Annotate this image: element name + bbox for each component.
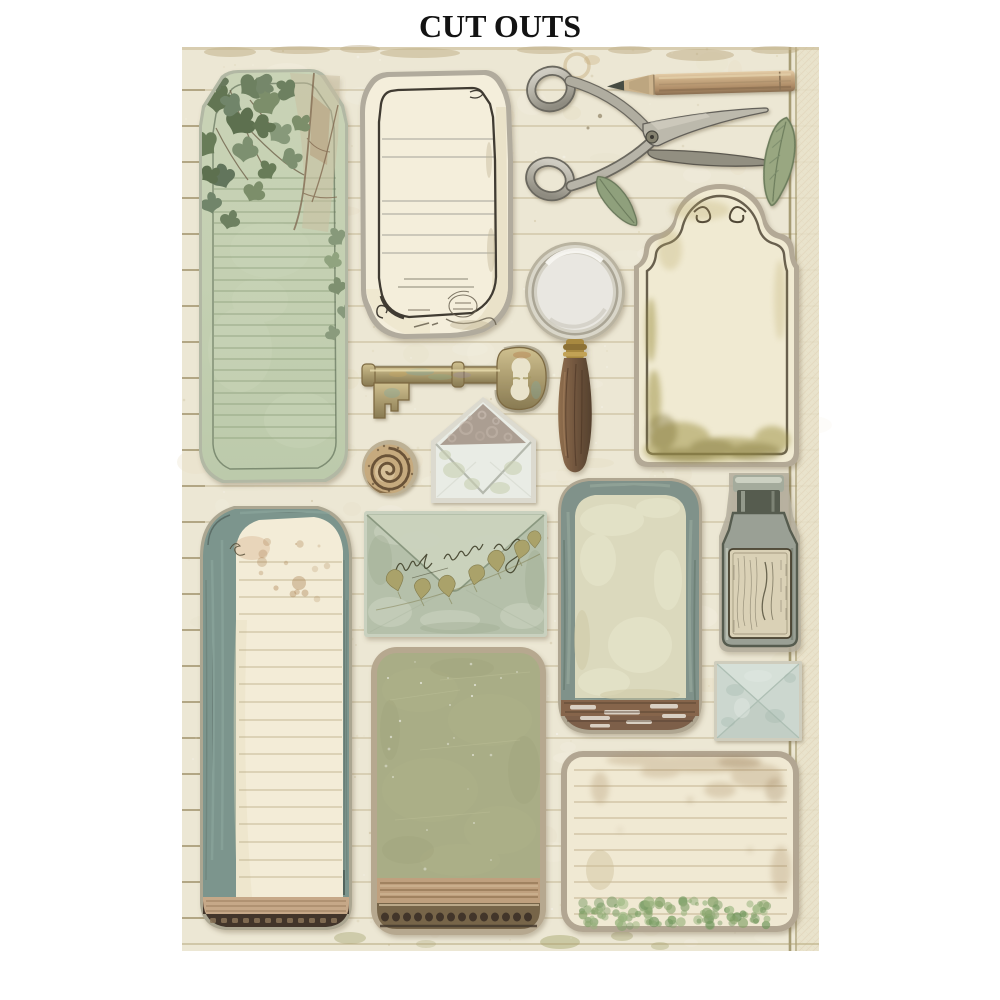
svg-text:CUT OUTS: CUT OUTS bbox=[419, 8, 581, 44]
